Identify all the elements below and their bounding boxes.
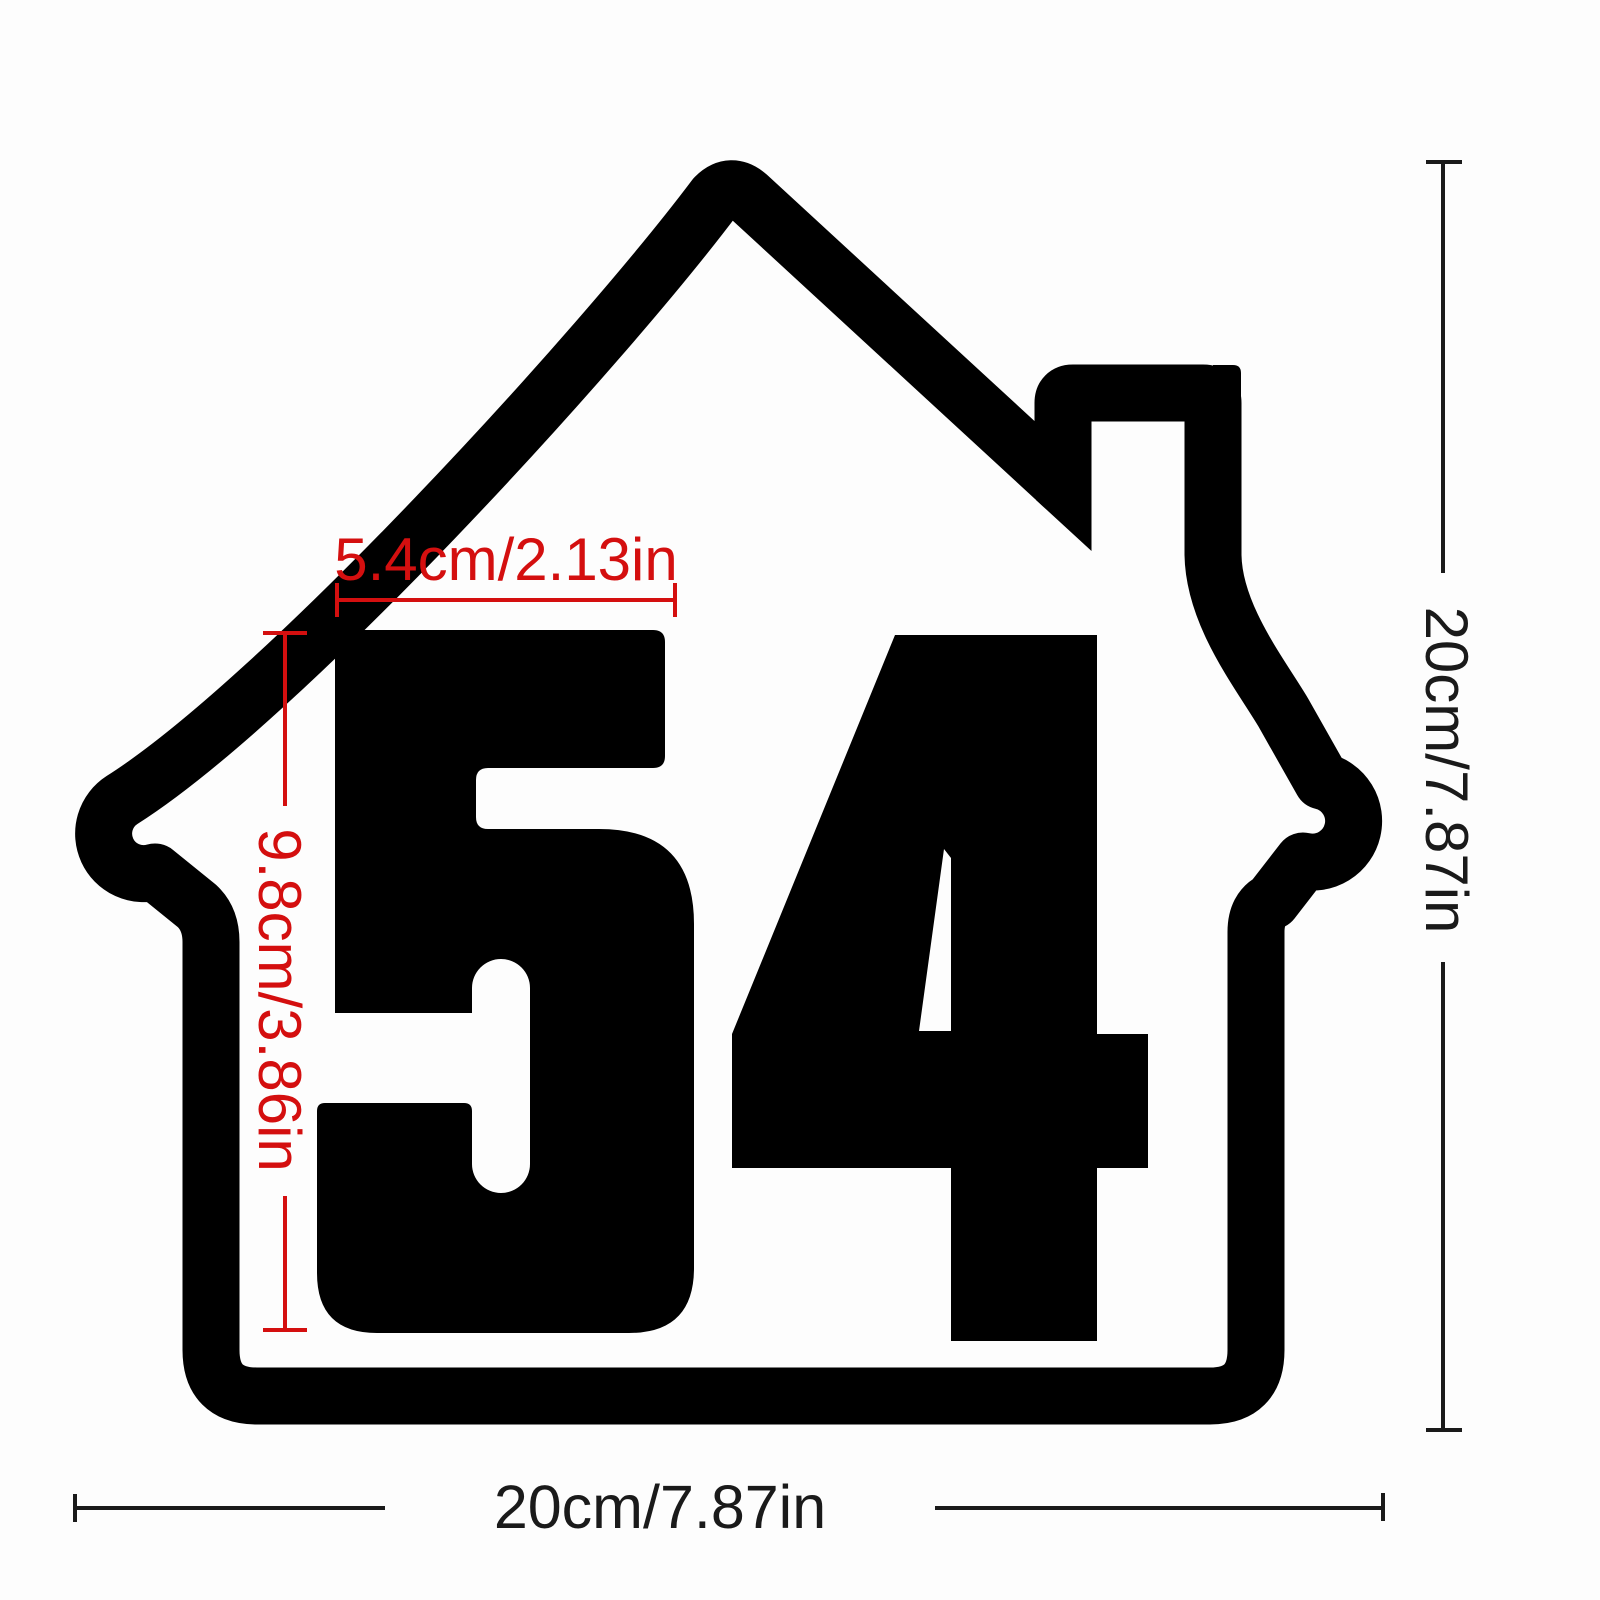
svg-text:9.8cm/3.86in: 9.8cm/3.86in	[246, 828, 313, 1172]
svg-text:20cm/7.87in: 20cm/7.87in	[494, 1473, 826, 1541]
svg-text:5.4cm/2.13in: 5.4cm/2.13in	[334, 526, 678, 593]
svg-text:20cm/7.87in: 20cm/7.87in	[1413, 607, 1480, 934]
